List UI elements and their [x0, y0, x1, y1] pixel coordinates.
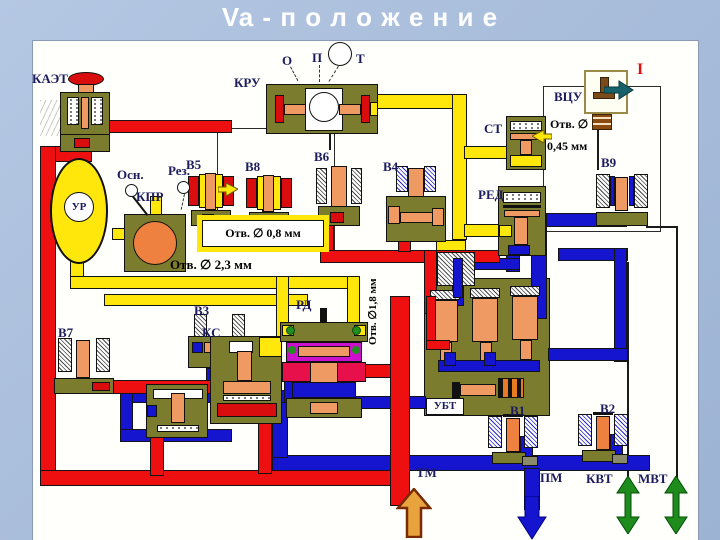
ks-label: КС: [202, 326, 221, 339]
rd-regulator: [280, 308, 368, 422]
v7-valve: [54, 338, 114, 396]
v3-label: В3: [194, 304, 209, 317]
teal-arrow-icon: [604, 79, 634, 101]
tm-arrow-icon: [396, 488, 432, 538]
tm-label: ТМ: [416, 466, 437, 479]
ur-reservoir: УР: [50, 158, 108, 264]
v4-label: В4: [383, 160, 398, 173]
v4-valve: [386, 166, 446, 242]
osn-label: Осн.: [117, 168, 144, 181]
ubt-piston-cap: [510, 286, 540, 296]
i-mark-label: I: [637, 62, 643, 78]
v9-valve: [596, 168, 648, 228]
pipe-blue: [548, 348, 628, 361]
t-port-circle: [328, 42, 352, 66]
kru-label: КРУ: [234, 76, 261, 89]
ubt-label: УБТ: [426, 398, 464, 415]
kvt-label: КВТ: [586, 472, 613, 485]
rez-port-circle: [177, 181, 190, 194]
pointer-line: [319, 65, 320, 82]
v1-label: В1: [510, 404, 525, 417]
pipe-red: [40, 470, 408, 486]
control-line: [646, 226, 678, 228]
vcu-label: ВЦУ: [554, 90, 582, 103]
valve-unnamed: [146, 384, 208, 438]
ubt-bottom-piston: [460, 384, 496, 396]
pm-label: ПМ: [540, 471, 562, 484]
st-valve: [506, 116, 546, 170]
ubt-piston-cap: [470, 288, 500, 298]
slide-title: Va - п о л о ж е н и е: [0, 2, 720, 33]
rd-label: РД: [296, 298, 312, 311]
p-port-label: П: [312, 51, 322, 64]
otv08-note: Отв. ∅ 0,8 мм: [202, 220, 324, 247]
ur-label: УР: [64, 192, 94, 222]
ks-valve: [210, 336, 282, 424]
pipe-yellow: [70, 276, 360, 289]
v6-label: В6: [314, 150, 329, 163]
kpr-label: КПР: [136, 190, 163, 203]
slide: Va - п о л о ж е н и е: [0, 0, 720, 540]
kvt-arrow-icon: [616, 476, 640, 534]
ubt-piston: [512, 296, 538, 340]
v6-valve: [316, 162, 362, 228]
otv18-note: Отв. ∅1,8 мм: [368, 279, 379, 345]
kaet-valve: [60, 92, 110, 136]
st-label: СТ: [484, 122, 502, 135]
ubt-piston: [472, 298, 498, 342]
v7-label: В7: [58, 326, 73, 339]
pipe-blue: [484, 352, 496, 366]
vcu-coil: [592, 114, 612, 130]
pipe-red: [426, 340, 450, 350]
v5-valve: [188, 168, 234, 226]
yellow-arrow-icon: [218, 183, 238, 196]
pipe-yellow: [464, 146, 510, 159]
v9-label: В9: [601, 156, 616, 169]
v5-label: В5: [186, 158, 201, 171]
v8-label: В8: [245, 160, 260, 173]
kaet-label: КАЭТ: [32, 72, 68, 85]
pipe-yellow: [452, 94, 467, 240]
pipe-red-tm: [390, 296, 410, 506]
v2-valve: [576, 410, 630, 466]
mvt-arrow-icon: [664, 476, 688, 534]
t-port-label: Т: [356, 52, 365, 65]
red-label: РЕД: [478, 188, 504, 201]
pipe-blue: [453, 258, 463, 298]
v2-label: В2: [600, 402, 615, 415]
pipe-red: [90, 120, 232, 133]
ubt-collar: [452, 382, 460, 398]
v1-valve: [486, 412, 540, 468]
otv23-note: Отв. ∅ 2,3 мм: [170, 258, 252, 271]
pm-arrow-icon: [516, 496, 548, 540]
mvt-label: МВТ: [638, 472, 667, 485]
control-line: [676, 226, 678, 482]
otv045-note-line1: Отв. ∅: [550, 118, 588, 130]
ubt-striped-cylinder: [498, 378, 524, 398]
red-valve: [498, 186, 546, 256]
pipe-blue: [444, 352, 456, 366]
kaet-base: [60, 134, 110, 152]
ubt-piston-stem: [520, 340, 532, 360]
otv045-note-line2: 0,45 мм: [547, 140, 587, 152]
control-line: [329, 132, 331, 150]
pipe-blue: [614, 248, 627, 362]
o-port-label: О: [282, 54, 292, 67]
kru-valve: [266, 84, 378, 134]
